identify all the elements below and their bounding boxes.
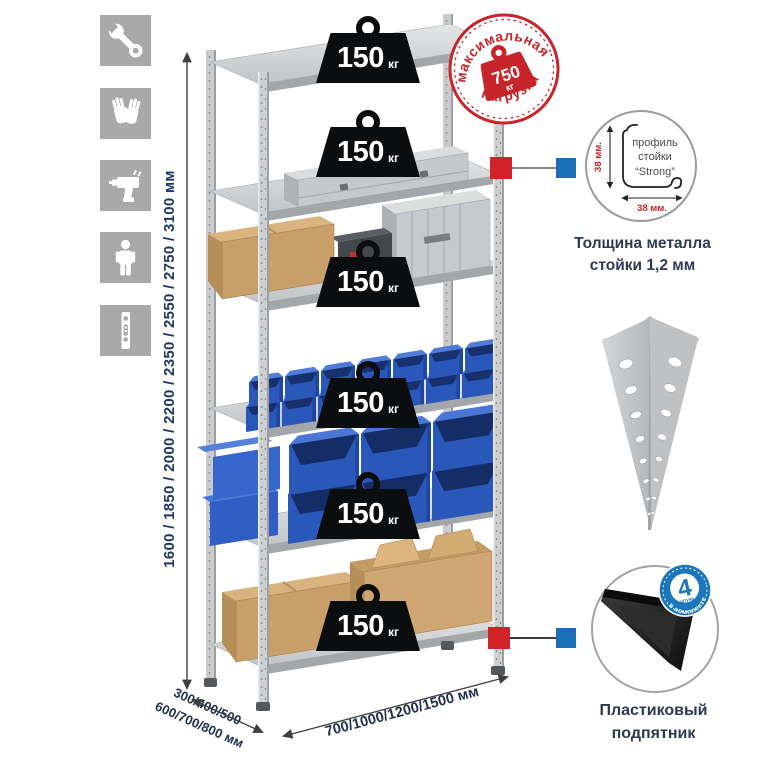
shelf-load-weight: 150кг [316, 110, 420, 177]
shelf-load-weight: 150кг [316, 584, 420, 651]
width-dimension-line [284, 677, 507, 736]
profile-callout-marker [490, 157, 576, 179]
shelf-load-weight: 150кг [316, 16, 420, 83]
shelving-infographic: 1600 / 1850 / 2000 / 2200 / 2350 / 2550 … [0, 0, 765, 765]
included-count-badge: 4 штуки в комплекте [652, 557, 718, 623]
angle-post-picture [593, 302, 763, 537]
shelf-load-weight: 150кг [316, 472, 420, 539]
depth-dimension-line [193, 700, 262, 732]
shelf-load-weight: 150кг [316, 361, 420, 428]
foot-callout-marker [488, 627, 576, 649]
shelf-load-weight: 150кг [316, 240, 420, 307]
